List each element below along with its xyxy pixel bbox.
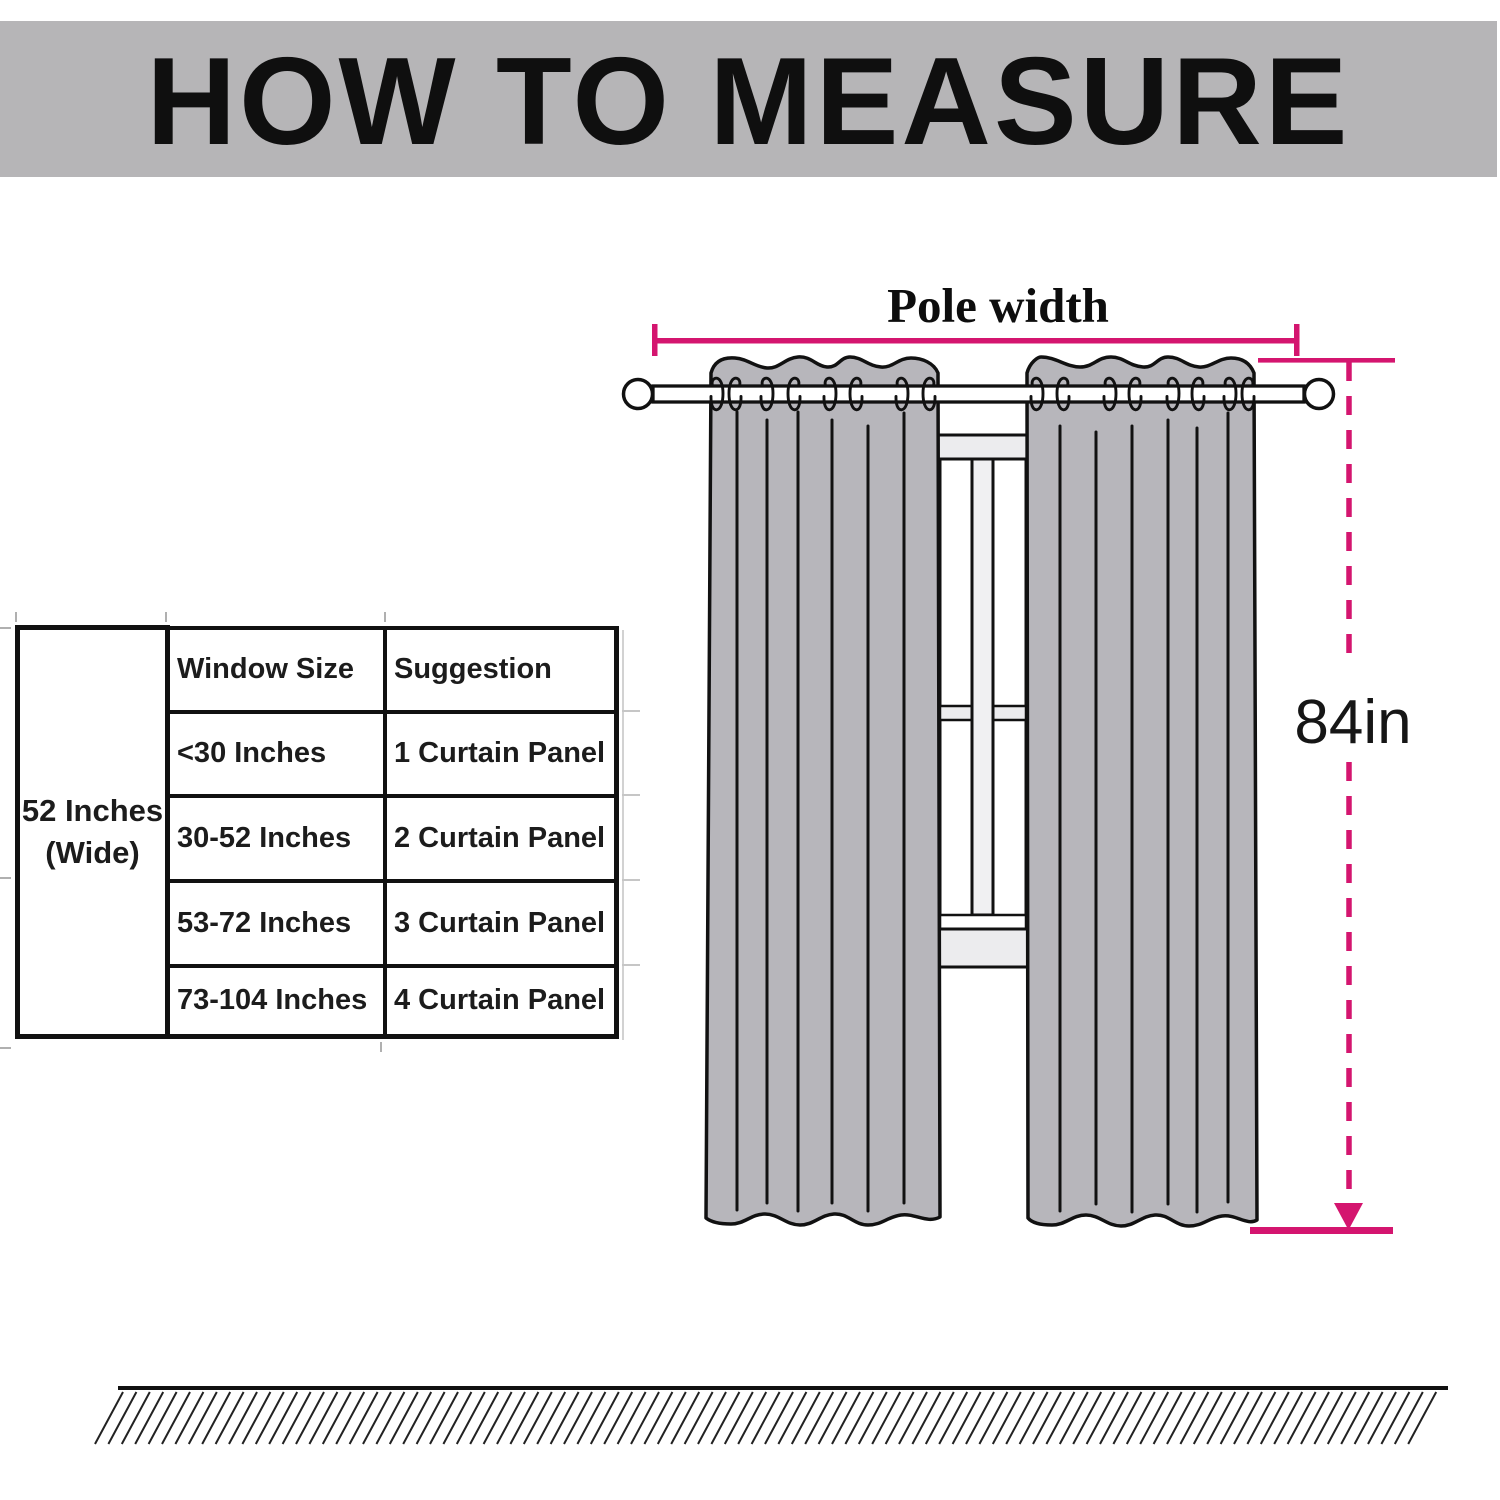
svg-text:Pole width: Pole width xyxy=(887,278,1109,333)
svg-text:84in: 84in xyxy=(1294,688,1411,757)
